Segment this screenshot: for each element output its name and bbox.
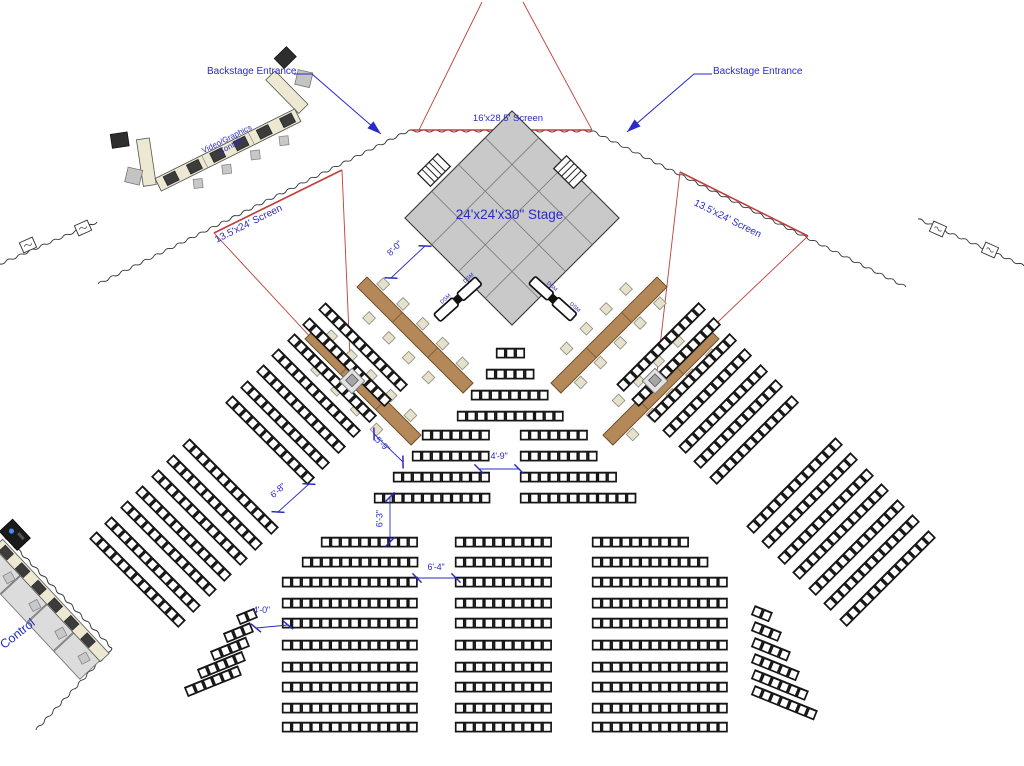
seat-row [520,472,617,481]
seat-row [282,598,418,607]
seat-row [592,722,728,731]
backstage-entrance-arrow [627,74,712,132]
label-stage: 24'x24'x30" Stage [437,208,582,222]
seating-section-right-wing-upper [617,302,799,484]
seat-row [321,537,418,546]
dim-label-4-9: 4'-9" [483,452,515,461]
seat-row [455,577,552,586]
seating-section-rear-left [282,537,418,731]
seat-row [223,623,254,643]
seat-row [282,722,418,731]
seat-row [282,577,418,586]
seat-row [282,618,418,627]
seat-row [422,430,490,439]
seat-row [455,640,552,649]
seat-row [471,390,549,399]
label-backstage-entrance-right: Backstage Entrance [713,67,803,78]
seating-section-left-wing-lower [90,439,279,628]
seat-row [496,348,525,357]
seating-section-left-rear-wedge [184,608,258,696]
seat-row [592,618,728,627]
drape-box [981,242,998,258]
seating-section-left-wing-upper [226,303,408,485]
seating-section-rear-center [455,537,552,731]
seating-section-right-rear-wedge [751,606,817,720]
drape-box [74,220,91,236]
seat-row [282,682,418,691]
seat-row [520,451,598,460]
seat-row [282,640,418,649]
seat-row [455,598,552,607]
seat-row [455,537,552,546]
seating-section-center-mid-left [374,430,490,502]
seat-row [302,557,418,566]
seat-row [455,662,552,671]
seat-row [455,722,552,731]
seat-row [455,703,552,712]
seat-row [393,472,490,481]
seating-section-right-wing-lower [747,437,936,626]
dim-label-6-4: 6'-4" [420,563,452,572]
seat-row [592,682,728,691]
seat-row [282,662,418,671]
seat-row [592,537,689,546]
seat-row [520,493,636,502]
drape-box [19,237,36,253]
dim-label-4-0: 4'-0" [253,606,270,615]
seat-row [486,369,535,378]
seat-row [412,451,490,460]
dim-label-6-3: 6'-3" [375,503,384,535]
seat-row [457,411,564,420]
seat-row [592,703,728,712]
drape-box [929,221,946,237]
dsm-table: DSMDSM [430,272,483,322]
venue-floor-plan: DSMDSMDSMDSM Backstage Entrance Backstag… [0,0,1024,766]
seat-row [455,618,552,627]
seating-section-center-front-pyramid [457,348,564,420]
seat-row [751,606,773,622]
seat-row [592,640,728,649]
label-backstage-entrance-left: Backstage Entrance [207,67,297,78]
seating-section-center-mid-right [520,430,636,502]
seat-row [592,662,728,671]
seat-row [592,598,728,607]
seat-row [455,557,552,566]
seat-row [520,430,588,439]
seat-row [455,682,552,691]
seat-row [592,577,728,586]
label-screen-top: 16'x28.5' Screen [448,114,568,124]
seat-row [592,557,708,566]
seating-section-rear-right [592,537,728,731]
seat-row [282,703,418,712]
